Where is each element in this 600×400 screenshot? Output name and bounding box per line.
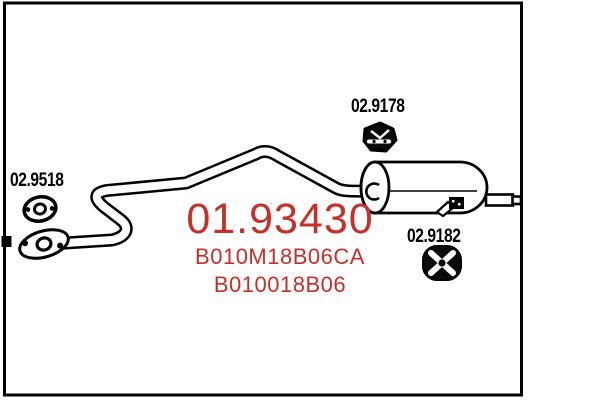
oe-reference-1: B010M18B06CA — [135, 245, 425, 269]
front-flange — [16, 225, 71, 264]
clamp-icon — [364, 123, 396, 151]
gasket-ring-icon — [22, 194, 58, 224]
connection-marker — [2, 236, 12, 247]
part-label-clamp: 02.9178 — [351, 96, 404, 118]
part-label-gasket: 02.9518 — [10, 170, 63, 192]
main-part-number: 01.93430 — [135, 197, 425, 241]
tailpipe — [486, 195, 521, 206]
oe-reference-2: B010018B06 — [135, 273, 425, 297]
rubber-mount-icon — [423, 245, 461, 281]
main-part-block: 01.93430 B010M18B06CA B010018B06 — [135, 197, 425, 297]
catalog-diagram: 02.9518 02.9178 02.9182 01.93430 B010M18… — [0, 0, 600, 400]
